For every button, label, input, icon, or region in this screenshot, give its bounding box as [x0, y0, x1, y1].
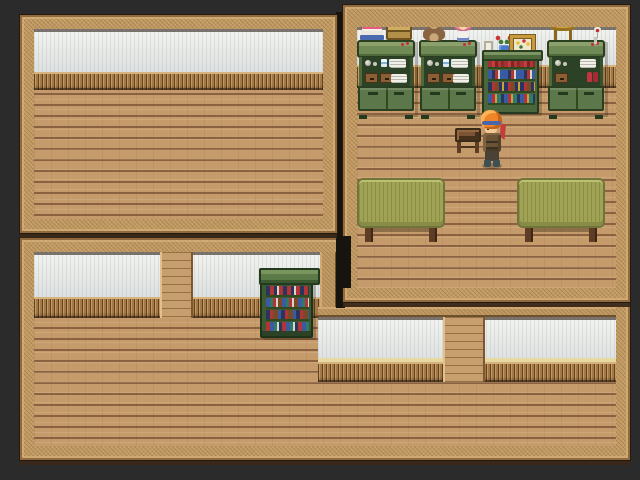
- teddy-bear: [423, 27, 445, 41]
- room-top-left: [20, 15, 337, 233]
- table-leg: [525, 228, 533, 242]
- plate-stack: [453, 74, 469, 83]
- table-top: [357, 178, 445, 228]
- table-shadow: [525, 228, 597, 232]
- small-drawer: [555, 73, 568, 83]
- room-gap-notch: [337, 236, 351, 288]
- top-left-room-floor: [34, 29, 323, 219]
- dresser-shelf: [421, 57, 475, 87]
- framed-picture: [510, 35, 535, 54]
- dresser-cabinet: [420, 86, 476, 111]
- glass-jars: [427, 60, 433, 66]
- dresser-cabinet: [548, 86, 604, 111]
- table-leg: [365, 228, 373, 242]
- table-right[interactable]: [517, 178, 605, 242]
- wine-glass: [594, 27, 601, 40]
- character-boot: [484, 160, 491, 167]
- blue-cups: [381, 59, 387, 67]
- blue-cups: [443, 59, 449, 67]
- wall-pillar-left: [160, 252, 193, 318]
- wall-top-trim-right: [318, 307, 616, 317]
- dresser-cabinet: [358, 86, 414, 111]
- book-row: [266, 310, 309, 319]
- glass-jars: [365, 60, 371, 66]
- wooden-stool[interactable]: [455, 128, 481, 155]
- dresser-a[interactable]: [357, 40, 415, 115]
- wall-pillar-right: [443, 317, 485, 382]
- room-top-right: [343, 5, 630, 302]
- game-screen[interactable]: [0, 0, 640, 480]
- bookshelf-top[interactable]: [482, 52, 539, 114]
- table-leg: [429, 228, 437, 242]
- briefcase: [386, 27, 412, 40]
- book-row: [488, 94, 535, 103]
- red-shoes: [587, 72, 592, 82]
- dresser-c[interactable]: [547, 40, 605, 115]
- character-headband: [482, 121, 501, 125]
- table-shadow: [365, 228, 437, 232]
- table-left[interactable]: [357, 178, 445, 242]
- dresser-top: [547, 40, 605, 58]
- plate-stack: [390, 59, 406, 68]
- dresser-top: [357, 40, 415, 58]
- book-row: [266, 322, 309, 331]
- book-row: [488, 82, 535, 91]
- book-stack: [360, 27, 384, 40]
- character-hair: [481, 110, 502, 129]
- plate-stack: [391, 74, 407, 83]
- plate-stack: [452, 59, 468, 68]
- table-leg: [589, 228, 597, 242]
- doll: [454, 27, 472, 41]
- dresser-shelf: [549, 57, 603, 87]
- book-row: [488, 58, 535, 67]
- dresser-top: [419, 40, 477, 58]
- table-top: [517, 178, 605, 228]
- book-row: [266, 286, 309, 295]
- bookshelf-bottom[interactable]: [260, 268, 313, 338]
- character-boot: [493, 160, 500, 167]
- wall-top-left-room: [34, 29, 323, 72]
- plate-stack: [580, 59, 596, 68]
- top-right-room-floor: [357, 27, 616, 288]
- book-row: [488, 70, 535, 79]
- wall-corner-strip: [320, 252, 337, 310]
- small-drawer: [365, 73, 378, 83]
- gold-stool: [550, 27, 576, 40]
- character-body: [483, 133, 501, 152]
- glass-jars: [555, 60, 561, 66]
- small-drawer: [427, 73, 440, 83]
- dresser-b[interactable]: [419, 40, 477, 115]
- small-frame: [484, 41, 493, 54]
- dresser-shelf: [359, 57, 413, 87]
- player-character[interactable]: [481, 110, 504, 168]
- wainscot-top-left-room: [34, 72, 323, 90]
- book-row: [266, 298, 309, 307]
